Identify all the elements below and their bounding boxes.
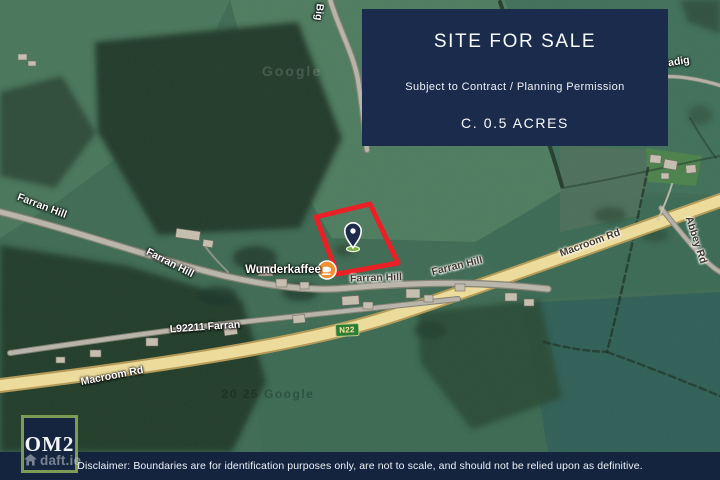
road-shield-n22: N22	[335, 323, 359, 337]
poi-label[interactable]: Wunderkaffee	[245, 264, 321, 276]
banner-subtitle: Subject to Contract / Planning Permissio…	[362, 81, 668, 93]
banner-title: SITE FOR SALE	[362, 31, 668, 53]
screenshot-root: Farran HillFarran HillFarran HillFarran …	[0, 0, 720, 480]
daft-watermark: daft.ie	[24, 451, 81, 469]
disclaimer-text: Disclaimer: Boundaries are for identific…	[77, 460, 642, 472]
sale-banner: SITE FOR SALE Subject to Contract / Plan…	[362, 9, 668, 146]
location-pin[interactable]	[345, 223, 361, 252]
disclaimer-bar: Disclaimer: Boundaries are for identific…	[0, 452, 720, 480]
daft-watermark-text: daft.ie	[40, 453, 81, 468]
house-icon	[24, 454, 37, 466]
banner-acreage: C. 0.5 ACRES	[362, 115, 668, 131]
